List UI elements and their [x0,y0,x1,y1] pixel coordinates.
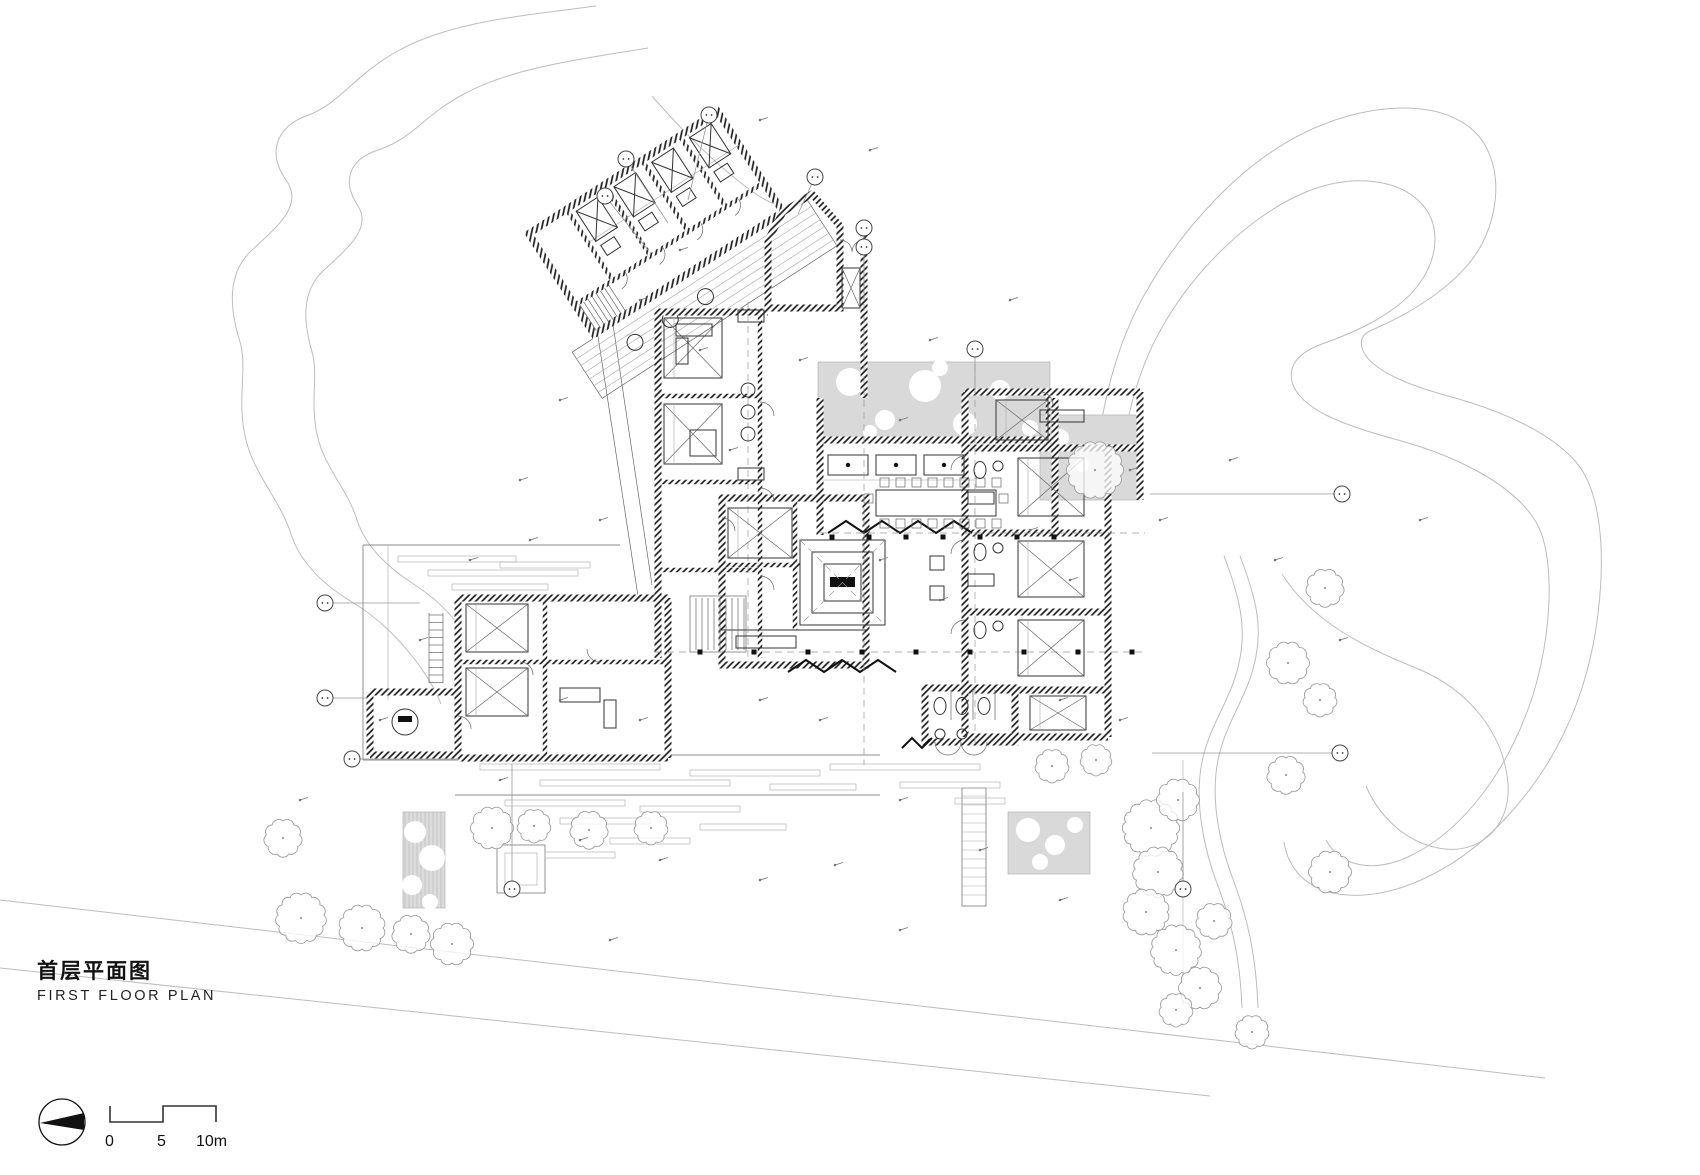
table-top [398,716,412,722]
grid-bubble-dot [327,697,329,699]
column-marker [968,650,973,655]
deck-plank [500,562,590,568]
chair [992,519,1001,528]
level-marker-dot [579,839,582,842]
grid-bubble-dot [861,227,863,229]
grid-bubble-dot [1339,493,1341,495]
drawing-sheet: 首层平面图 FIRST FLOOR PLAN 0 5 10m [0,0,1700,1175]
tree-center [410,933,412,935]
toilet-fixture [974,544,986,561]
furniture-item [968,574,994,586]
level-marker-dot [759,699,762,702]
level-marker-dot [469,559,472,562]
level-marker-dot [1229,459,1232,462]
chair [999,494,1008,503]
toilet-fixture [978,698,990,715]
level-marker-dot [939,599,942,602]
tree-center [533,825,535,827]
tree-center [1145,911,1147,913]
column-marker [1022,650,1027,655]
grid-bubble-dot [972,348,974,350]
grid-bubble-dot [354,758,356,760]
chair [912,478,921,487]
grid-bubble-dot [327,602,329,604]
grid-bubble [856,220,872,236]
grid-bubble [1175,881,1191,897]
deck-plank [900,782,1000,788]
tree-center [282,837,284,839]
level-marker-dot [979,849,982,852]
tree-center [650,827,652,829]
grid-bubble-dot [514,888,516,890]
scale-label-0: 0 [105,1133,114,1150]
tree-center [1324,587,1326,589]
grid-bubble [344,751,360,767]
sink-fixture [993,621,1003,631]
level-marker-dot [299,799,302,802]
deck-plank [480,764,660,770]
grid-bubble-dot [509,888,511,890]
grid-bubble [807,169,823,185]
furniture-item [560,688,600,702]
tree-center [1157,871,1159,873]
level-marker-dot [759,119,762,122]
page-subtitle: FIRST FLOOR PLAN [37,988,216,1004]
level-marker-dot [519,479,522,482]
grid-bubble-dot [711,114,713,116]
tree-center [1329,871,1331,873]
level-marker-dot [799,359,802,362]
title-block: 首层平面图 FIRST FLOOR PLAN [37,959,216,1004]
grid-leader [605,196,648,250]
column-marker [1052,535,1057,540]
column-marker [867,535,872,540]
level-marker-dot [1059,899,1062,902]
grid-bubble-dot [812,176,814,178]
grid-bubble-dot [1185,888,1187,890]
tree-center [1150,827,1152,829]
chair [928,478,937,487]
deck-plank [700,824,786,830]
toilet-fixture [934,698,946,715]
level-marker-dot [639,719,642,722]
column-marker [860,650,865,655]
level-marker-dot [679,249,682,252]
grid-bubble-dot [322,697,324,699]
level-marker-dot [419,639,422,642]
grid-bubble-dot [602,195,604,197]
scale-label-5: 5 [157,1133,166,1150]
grid-bubble-dot [866,246,868,248]
tree-center [1285,774,1287,776]
level-marker-dot [1339,639,1342,642]
toilet-fixture [974,622,986,639]
sink-fixture [993,543,1003,553]
column-marker [904,535,909,540]
grid-bubble [597,188,613,204]
tree-center [1251,1031,1253,1033]
tree-center [1199,987,1201,989]
grid-bubble [1334,486,1350,502]
deck-plank [545,852,615,858]
grid-bubble-dot [1344,493,1346,495]
level-marker-dot [1129,469,1132,472]
level-marker-dot [1059,699,1062,702]
level-marker-dot [899,419,902,422]
grid-bubble-dot [977,348,979,350]
grid-bubble-dot [628,158,630,160]
column-marker [914,650,919,655]
level-marker-dot [929,339,932,342]
north-arrow-icon [39,1099,85,1145]
grid-bubble [1332,745,1348,761]
deck-plank [690,770,820,776]
page-title: 首层平面图 [37,959,152,983]
level-marker-dot [529,539,532,542]
tree-center [588,829,590,831]
level-marker-dot [559,699,562,702]
level-marker-dot [699,349,702,352]
level-marker-dot [609,939,612,942]
level-marker-dot [379,719,382,722]
level-marker-dot [1419,519,1422,522]
chair [976,519,985,528]
grid-bubble-dot [1337,752,1339,754]
level-marker-dot [1069,579,1072,582]
level-marker-dot [1119,719,1122,722]
grid-bubble-dot [349,758,351,760]
furniture-item [690,430,716,456]
sink-fixture [993,461,1003,471]
column-marker [1130,650,1135,655]
rotated-guest-wing [505,96,837,398]
grid-bubble [856,239,872,255]
grid-bubble [967,341,983,357]
boardwalk [962,788,986,906]
column-marker [1015,535,1020,540]
furniture-item [604,700,616,728]
bed-cross [664,318,722,378]
grid-bubble-dot [706,114,708,116]
grid-bubble [317,690,333,706]
deck-plank [398,556,516,562]
deck-plank [955,798,1005,804]
level-marker-dot [1274,559,1277,562]
site-contours [232,6,1601,895]
deck-plank [540,780,730,786]
level-marker-dot [759,879,762,882]
tree-center [300,917,302,919]
column-marker [978,535,983,540]
dining-table [876,490,996,516]
column-marker [941,535,946,540]
furniture-item [968,492,994,504]
level-marker-dot [499,779,502,782]
level-marker-dot [639,299,642,302]
chair [896,478,905,487]
furniture-item [676,338,688,364]
column-marker [752,650,757,655]
tree-center [361,927,363,929]
bed-cross [466,668,528,716]
bed-cross [664,404,722,464]
trees [264,442,1352,1049]
tree-center [1287,662,1289,664]
chair [992,478,1001,487]
grid-bubble-dot [1180,888,1182,890]
grid-bubble-dot [1342,752,1344,754]
grid-bubble-dot [322,602,324,604]
scale-label-10m: 10m [196,1133,227,1150]
stairs [429,596,746,683]
wc-partition [951,690,995,720]
bed-cross [466,604,528,652]
level-marker-dot [879,559,882,562]
column-marker [698,650,703,655]
level-marker-dot [1159,519,1162,522]
tree-center [1051,765,1053,767]
level-marker-dot [559,399,562,402]
deck-plank [830,764,980,770]
deck-plank [428,570,578,576]
deck-plank [640,806,740,812]
deck-plank [452,584,548,590]
chair [928,519,937,528]
tree-center [1094,469,1096,471]
toilet-fixture [974,462,986,479]
sink-fixture [935,729,945,739]
deck-plank [770,784,856,790]
level-marker-dot [899,929,902,932]
grid-bubble [701,107,717,123]
grid-bubble-dot [623,158,625,160]
floor-plan-drawing: 首层平面图 FIRST FLOOR PLAN 0 5 10m [0,0,1700,1175]
level-marker-dot [729,449,732,452]
level-marker-dot [819,719,822,722]
column-marker [806,650,811,655]
level-marker-dot [1029,529,1032,532]
grid-bubble-dot [861,246,863,248]
tree-center [1175,949,1177,951]
tree-center [451,943,453,945]
column-marker [1076,650,1081,655]
tree-center [1177,799,1179,801]
grid-bubble-dot [817,176,819,178]
courtyard-pool [800,540,885,625]
chair [976,478,985,487]
grid-bubble-dot [866,227,868,229]
level-marker-dot [1009,299,1012,302]
chair [896,519,905,528]
deck-plank [505,800,625,806]
road-lines [0,556,1545,1096]
tree-center [491,827,493,829]
tree-center [1175,1009,1177,1011]
grid-bubble [504,881,520,897]
column-marker [830,535,835,540]
level-marker-dot [869,149,872,152]
bed-cross [1030,696,1086,730]
level-marker-dot [834,864,837,867]
chair [944,478,953,487]
tree-center [1095,759,1097,761]
grid-bubble [618,151,634,167]
level-marker-dot [899,799,902,802]
tree-center [1319,699,1321,701]
chair [880,478,889,487]
level-marker-dot [659,859,662,862]
grid-bubble [317,595,333,611]
grid-bubbles [317,107,1350,897]
level-marker-dot [599,519,602,522]
tree-center [1213,920,1215,922]
grid-bubble-dot [607,195,609,197]
furniture-item [736,636,796,648]
scale-bar: 0 5 10m [105,1106,227,1150]
